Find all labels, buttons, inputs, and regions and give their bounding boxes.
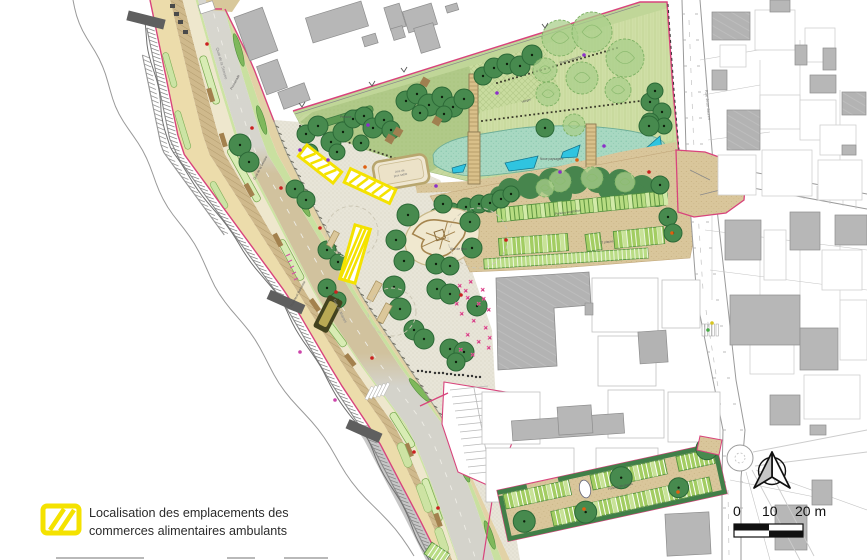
svg-text:Localisation des emplacements: Localisation des emplacements des [89,506,289,520]
svg-text:20 m: 20 m [795,503,826,519]
svg-text:Aire de jeux: Aire de jeux [450,247,467,251]
svg-text:10: 10 [762,503,778,519]
svg-text:0: 0 [733,503,741,519]
svg-text:Noue paysagere: Noue paysagere [540,157,564,161]
svg-text:Pelouse: Pelouse [340,115,352,119]
svg-text:commerces alimentaires ambulan: commerces alimentaires ambulants [89,524,287,538]
